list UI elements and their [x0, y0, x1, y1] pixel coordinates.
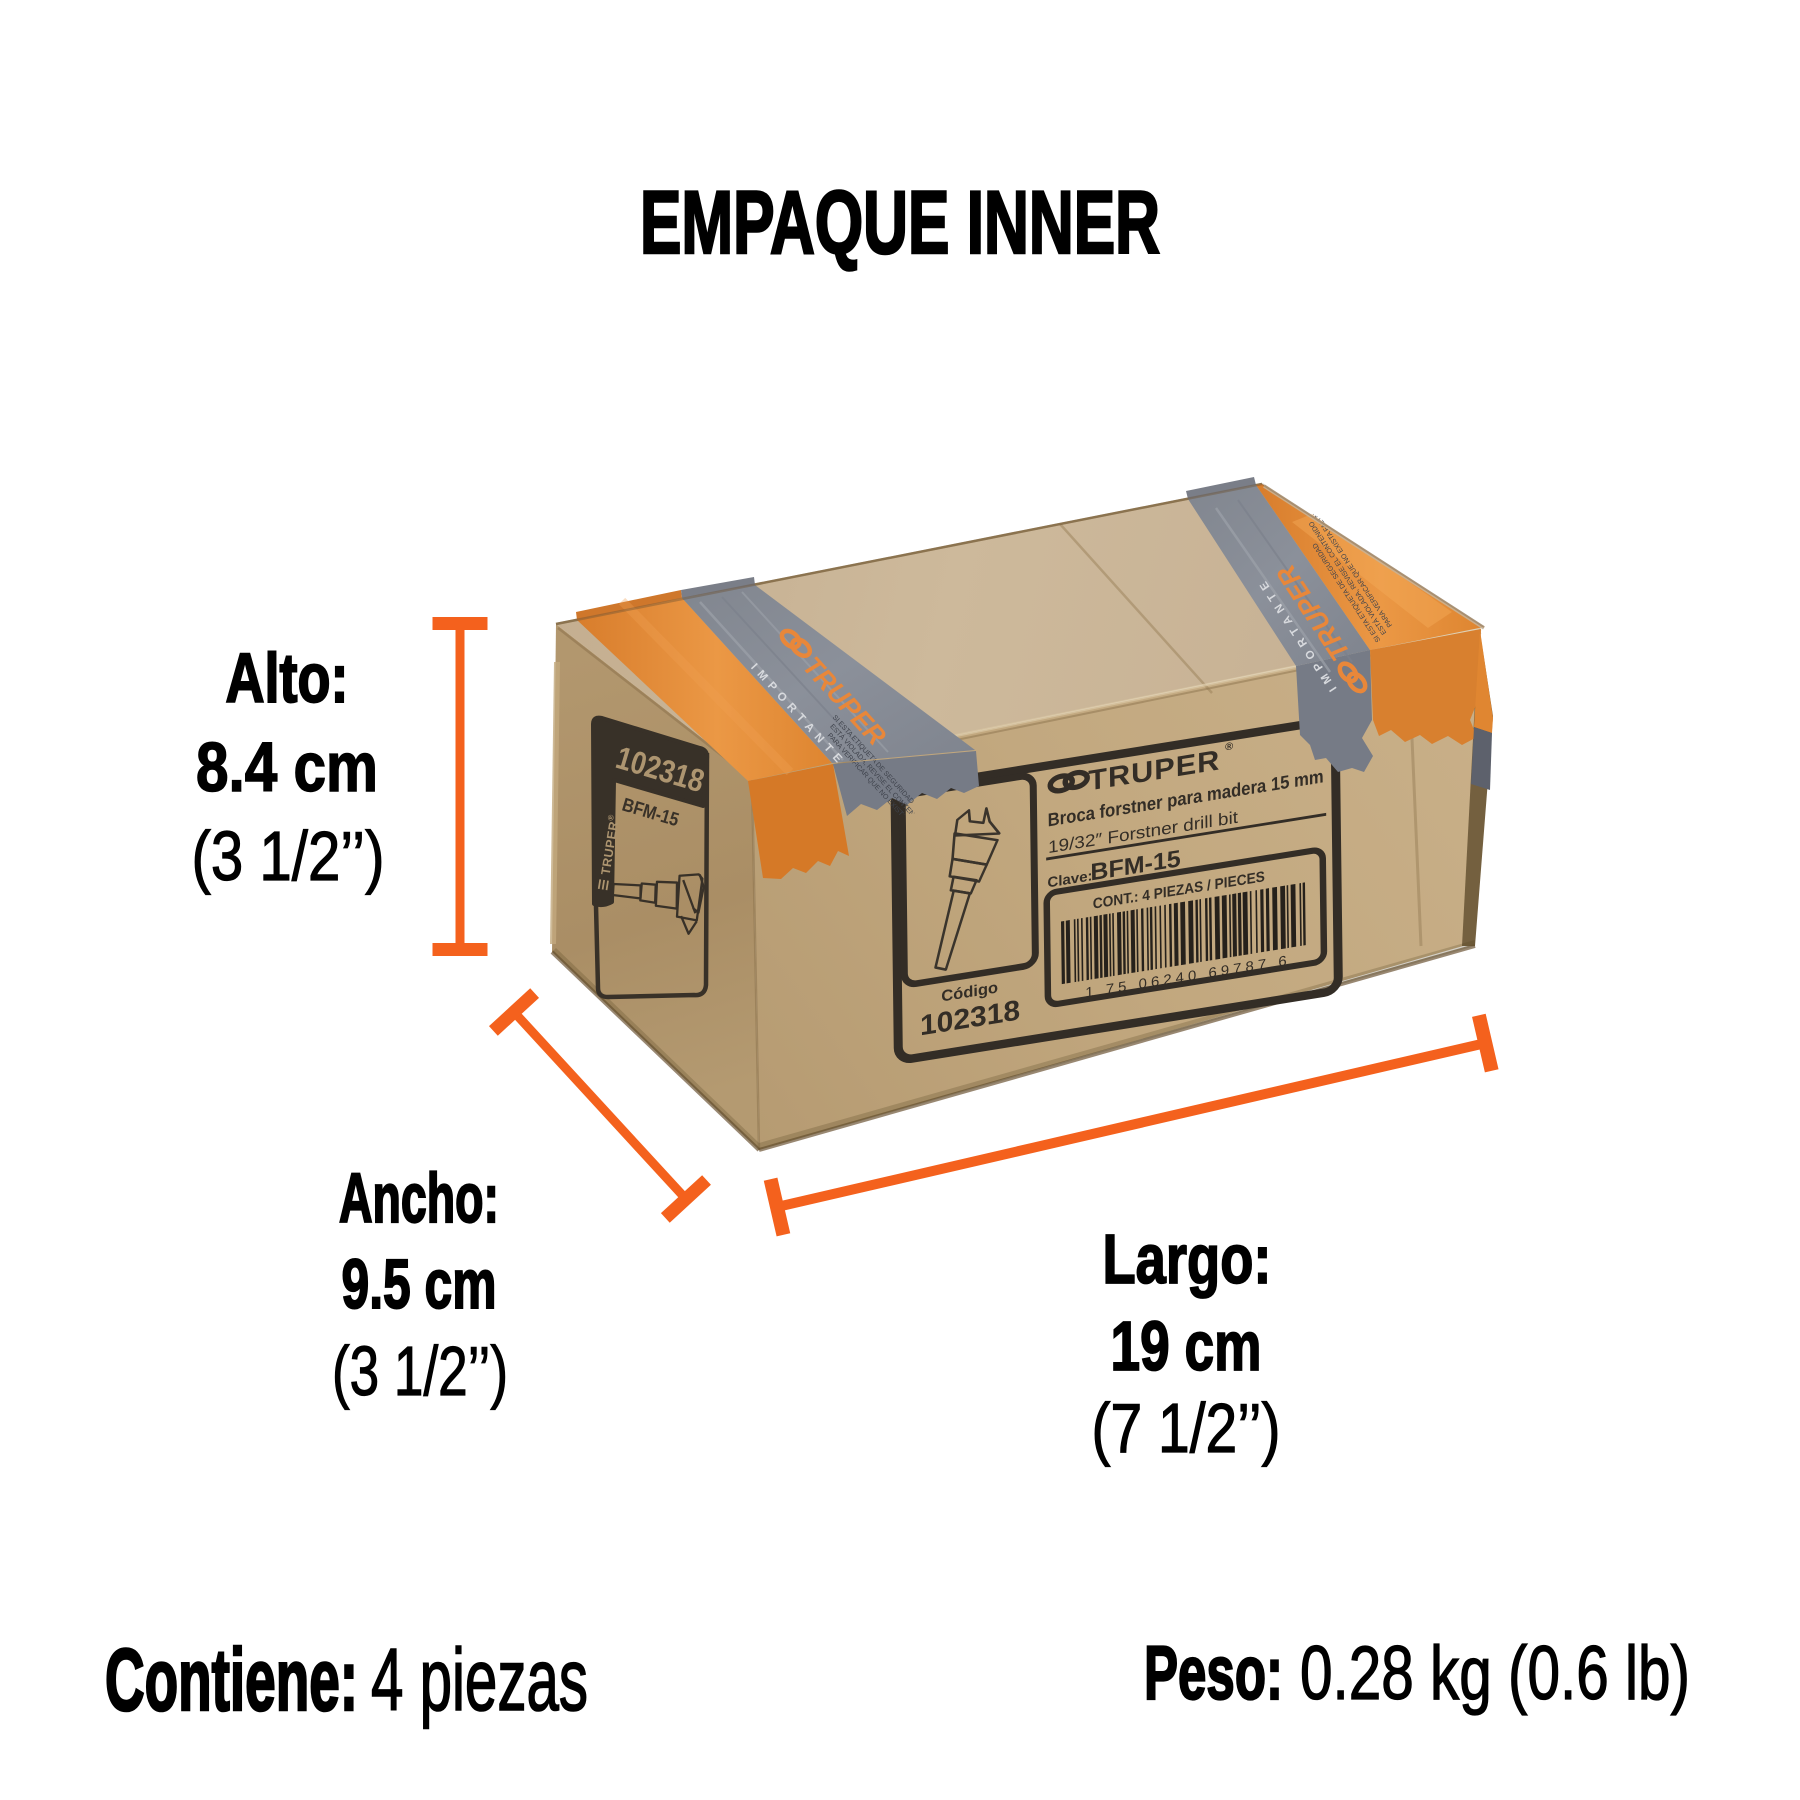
svg-text:4 piezas: 4 piezas [371, 1630, 588, 1729]
svg-text:Alto:: Alto: [226, 639, 349, 717]
svg-text:(3 1/2’’): (3 1/2’’) [332, 1332, 508, 1410]
svg-text:Largo:: Largo: [1103, 1220, 1272, 1298]
svg-text:Peso:: Peso: [1144, 1631, 1283, 1716]
svg-text:9.5 cm: 9.5 cm [342, 1245, 497, 1323]
svg-text:(3 1/2’’): (3 1/2’’) [192, 817, 385, 895]
svg-text:(7 1/2’’): (7 1/2’’) [1092, 1389, 1281, 1467]
svg-text:19 cm: 19 cm [1111, 1307, 1262, 1385]
svg-text:®: ® [1225, 740, 1233, 753]
svg-text:8.4 cm: 8.4 cm [196, 728, 378, 806]
svg-text:Ancho:: Ancho: [339, 1159, 499, 1237]
svg-text:0.28 kg (0.6 lb): 0.28 kg (0.6 lb) [1300, 1631, 1690, 1716]
svg-text:EMPAQUE INNER: EMPAQUE INNER [640, 172, 1160, 272]
svg-text:Contiene:: Contiene: [105, 1630, 358, 1729]
